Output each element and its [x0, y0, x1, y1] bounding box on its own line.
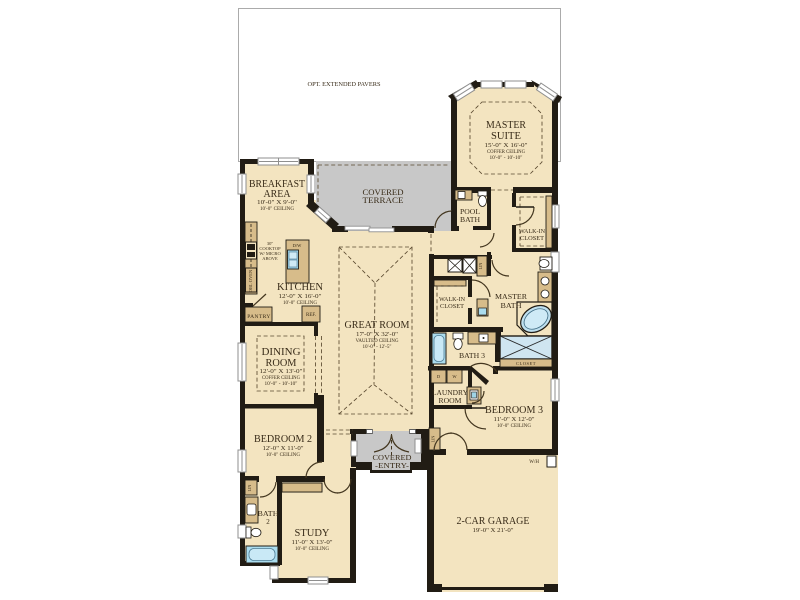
svg-text:BATH: BATH	[460, 216, 480, 224]
svg-text:17'-0" X 32'-0": 17'-0" X 32'-0"	[356, 331, 398, 338]
svg-text:GREAT ROOM: GREAT ROOM	[345, 320, 411, 331]
svg-text:STUDY: STUDY	[295, 528, 330, 539]
svg-text:10'-0" - 10'-10": 10'-0" - 10'-10"	[265, 382, 298, 387]
svg-text:BATH 3: BATH 3	[459, 352, 486, 360]
svg-text:BATH: BATH	[258, 510, 279, 518]
svg-text:10'-0" CEILING: 10'-0" CEILING	[283, 300, 317, 306]
svg-text:12'-0" X 16'-0": 12'-0" X 16'-0"	[279, 293, 322, 300]
svg-text:BEDROOM 2: BEDROOM 2	[254, 434, 312, 445]
svg-text:10'-0" CEILING: 10'-0" CEILING	[260, 206, 294, 212]
svg-text:KITCHEN: KITCHEN	[277, 282, 323, 293]
svg-text:LIN: LIN	[247, 485, 252, 492]
svg-text:MASTER: MASTER	[486, 120, 526, 131]
svg-text:BATH: BATH	[501, 302, 522, 310]
svg-text:SUITE: SUITE	[491, 131, 521, 142]
svg-text:15'-0" X 16'-0": 15'-0" X 16'-0"	[485, 142, 528, 149]
svg-text:CLOSET: CLOSET	[520, 236, 544, 242]
svg-text:11'-0" X 13'-0": 11'-0" X 13'-0"	[292, 539, 333, 546]
svg-text:DINING: DINING	[262, 347, 301, 358]
svg-text:COVERED: COVERED	[373, 454, 412, 462]
svg-text:OPT. EXTENDED PAVERS: OPT. EXTENDED PAVERS	[308, 82, 381, 88]
svg-text:MASTER: MASTER	[495, 293, 527, 301]
svg-text:10'-0" - 10'-10": 10'-0" - 10'-10"	[490, 156, 523, 161]
svg-text:CLOSET: CLOSET	[516, 361, 536, 366]
svg-text:LAUNDRY: LAUNDRY	[432, 389, 468, 397]
svg-text:2: 2	[266, 518, 270, 526]
svg-text:COFFER CEILING: COFFER CEILING	[487, 149, 525, 155]
svg-text:VAULTED CEILING: VAULTED CEILING	[356, 338, 399, 344]
svg-text:WALK-IN: WALK-IN	[519, 229, 546, 235]
svg-text:BEDROOM 3: BEDROOM 3	[485, 405, 543, 416]
svg-text:10'-0" - 12'-5": 10'-0" - 12'-5"	[363, 345, 392, 350]
svg-text:REF.: REF.	[306, 313, 316, 318]
svg-text:10'-0" X 9'-0": 10'-0" X 9'-0"	[257, 199, 297, 206]
svg-text:CLOSET: CLOSET	[440, 304, 464, 310]
svg-text:11'-0" X 12'-0": 11'-0" X 12'-0"	[494, 416, 535, 423]
svg-text:POOL: POOL	[460, 208, 480, 216]
svg-text:W/H: W/H	[529, 460, 539, 465]
svg-text:LIN: LIN	[431, 436, 436, 443]
svg-text:WALK-IN: WALK-IN	[439, 297, 466, 303]
svg-text:COFFER CEILING: COFFER CEILING	[262, 375, 300, 381]
svg-text:ABOVE: ABOVE	[262, 256, 278, 261]
svg-text:2-CAR GARAGE: 2-CAR GARAGE	[457, 516, 530, 527]
svg-text:10'-0" CEILING: 10'-0" CEILING	[497, 423, 531, 429]
svg-text:ROOM: ROOM	[439, 397, 463, 405]
svg-text:DBL OVEN: DBL OVEN	[248, 269, 253, 292]
svg-text:12'-0" X 13'-0": 12'-0" X 13'-0"	[260, 368, 303, 375]
svg-text:19'-0" X 21'-0": 19'-0" X 21'-0"	[473, 527, 514, 534]
svg-text:LIN: LIN	[478, 263, 483, 270]
svg-text:TERRACE: TERRACE	[363, 196, 404, 205]
svg-text:PANTRY: PANTRY	[247, 314, 271, 320]
svg-text:10'-0" CEILING: 10'-0" CEILING	[295, 546, 329, 552]
svg-text:-ENTRY-: -ENTRY-	[375, 462, 410, 470]
svg-text:D/W: D/W	[293, 243, 303, 248]
svg-text:12'-0" X 11'-0": 12'-0" X 11'-0"	[263, 445, 304, 452]
svg-text:10'-0" CEILING: 10'-0" CEILING	[266, 452, 300, 458]
